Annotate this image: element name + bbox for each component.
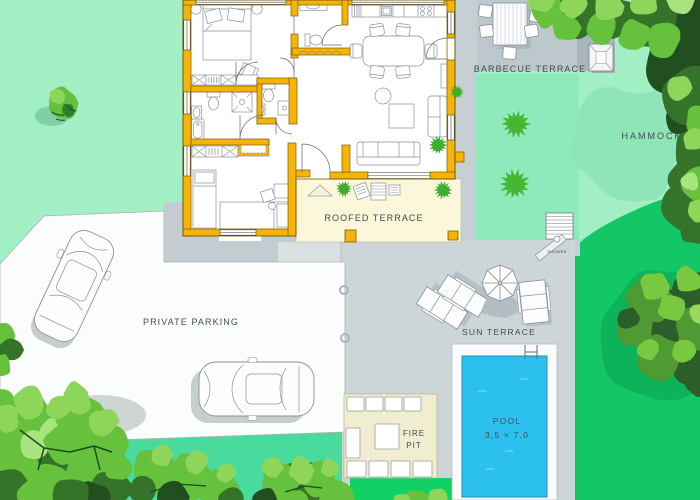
svg-text:BARBECUE TERRACE: BARBECUE TERRACE [474,64,586,74]
svg-text:PIT: PIT [406,441,421,450]
svg-text:PRIVATE PARKING: PRIVATE PARKING [143,317,239,327]
svg-text:SHOWER: SHOWER [547,249,566,254]
svg-text:HAMMOCK: HAMMOCK [622,131,683,141]
svg-text:POOL: POOL [493,416,521,426]
svg-text:3,5 × 7,0: 3,5 × 7,0 [485,430,529,440]
svg-text:ROOFED TERRACE: ROOFED TERRACE [324,213,423,223]
svg-text:SUN TERRACE: SUN TERRACE [462,327,536,337]
svg-text:FIRE: FIRE [403,429,425,438]
